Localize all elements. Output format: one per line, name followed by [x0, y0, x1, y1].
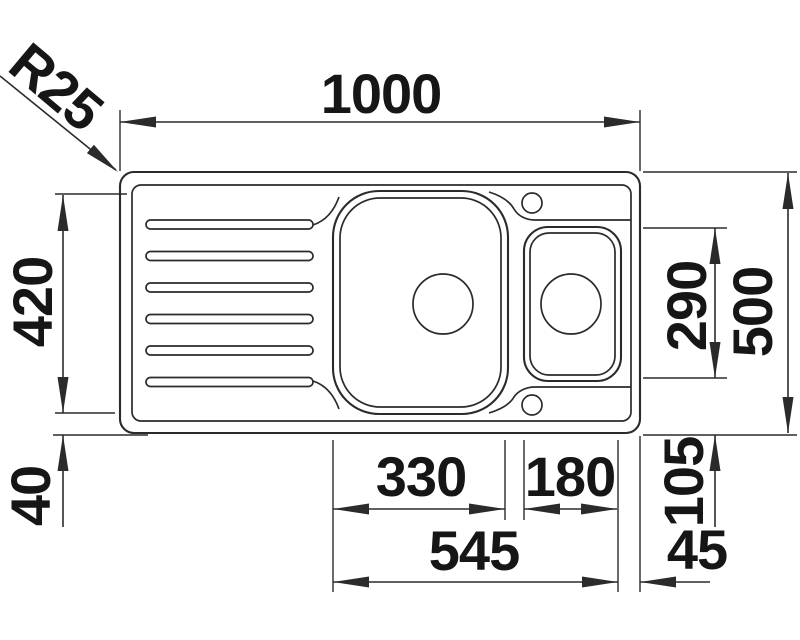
- drainer-groove: [146, 252, 313, 261]
- dim-label-500: 500: [725, 267, 781, 357]
- drainer-groove: [146, 220, 313, 229]
- arrow-420-bottom: [58, 377, 69, 413]
- drainer-groove: [146, 315, 313, 324]
- sink-body: [120, 172, 640, 433]
- dim-label-330: 330: [376, 449, 466, 505]
- arrow-500-bottom: [783, 397, 794, 433]
- dim-label-105: 105: [656, 437, 712, 527]
- arrow-1000-left: [120, 117, 156, 128]
- small-bowl-inner: [530, 233, 615, 375]
- arrow-330-left: [333, 504, 369, 515]
- arrow-330-right: [469, 504, 505, 515]
- arrow-290-top: [710, 228, 721, 264]
- dim-label-1000: 1000: [321, 66, 442, 122]
- drainer-groove: [146, 283, 313, 292]
- dim-label-45: 45: [667, 522, 727, 578]
- tap-hole-top: [522, 193, 542, 213]
- small-bowl-drain-hole: [541, 274, 601, 334]
- tap-hole-bottom: [522, 395, 542, 415]
- main-bowl-drain-hole: [413, 274, 473, 334]
- small-bowl-outer: [524, 227, 621, 381]
- dim-label-545: 545: [429, 523, 519, 579]
- deck-line-bottom: [489, 387, 631, 413]
- dim-label-180: 180: [525, 449, 615, 505]
- dim-label-40: 40: [3, 466, 59, 526]
- technical-drawing-canvas: 1000 R25 420 40 290 500 105 330 180 545 …: [0, 0, 800, 640]
- main-bowl-outer: [333, 191, 508, 414]
- drainer-grooves: [146, 220, 313, 387]
- arrow-420-top: [58, 195, 69, 231]
- drainer-groove: [146, 346, 313, 355]
- arrow-1000-right: [604, 117, 640, 128]
- arrow-545-right: [582, 577, 618, 588]
- arrow-500-top: [783, 173, 794, 209]
- sink-outline: [120, 172, 640, 433]
- arrow-r25-leader: [87, 145, 118, 172]
- arrow-545-left: [333, 577, 369, 588]
- deck-line-top: [489, 192, 631, 220]
- dim-label-290: 290: [659, 261, 715, 351]
- main-bowl-inner: [340, 198, 501, 407]
- drainer-groove: [146, 378, 313, 387]
- dim-label-420: 420: [5, 257, 61, 347]
